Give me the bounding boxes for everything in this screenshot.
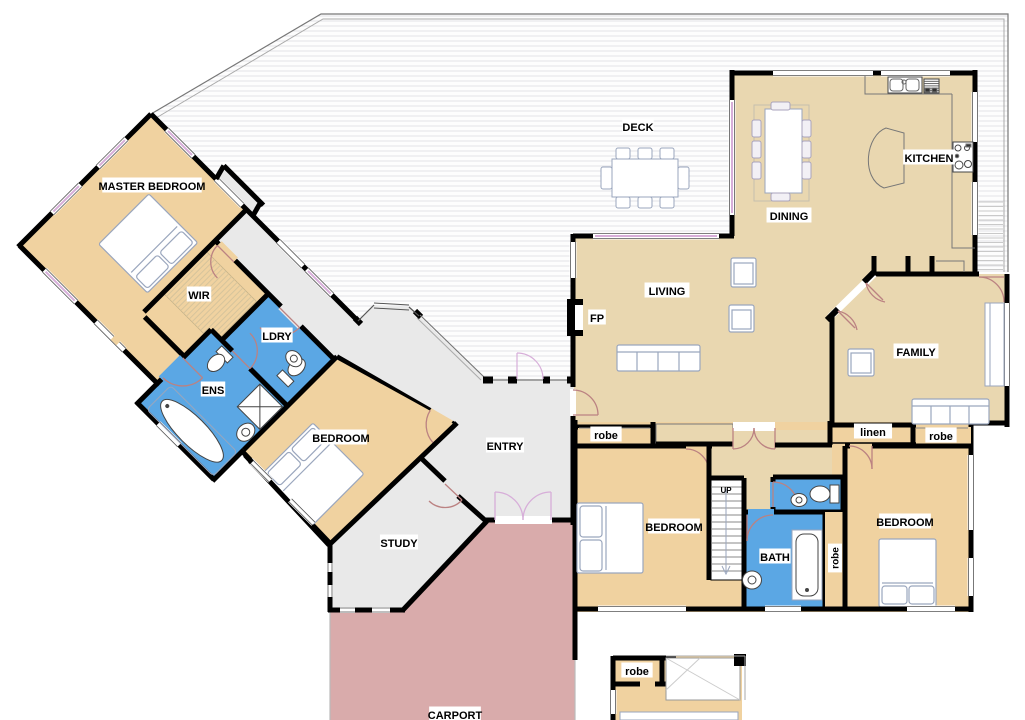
- svg-text:robe: robe: [625, 666, 649, 678]
- svg-text:BEDROOM: BEDROOM: [645, 522, 702, 534]
- svg-text:KITCHEN: KITCHEN: [905, 153, 954, 165]
- svg-text:BATH: BATH: [760, 552, 790, 564]
- svg-text:ENS: ENS: [202, 385, 225, 397]
- svg-text:STUDY: STUDY: [380, 538, 418, 550]
- svg-text:robe: robe: [594, 430, 618, 442]
- svg-text:CARPORT: CARPORT: [428, 710, 483, 720]
- svg-text:MASTER BEDROOM: MASTER BEDROOM: [99, 181, 206, 193]
- svg-text:DECK: DECK: [622, 122, 653, 134]
- svg-text:LIVING: LIVING: [649, 286, 686, 298]
- svg-text:robe: robe: [929, 431, 953, 443]
- svg-text:UP: UP: [720, 486, 732, 495]
- svg-text:BEDROOM: BEDROOM: [312, 433, 369, 445]
- svg-text:LDRY: LDRY: [262, 331, 292, 343]
- svg-text:ENTRY: ENTRY: [487, 441, 525, 453]
- svg-text:WIR: WIR: [188, 290, 209, 302]
- svg-text:DINING: DINING: [770, 211, 809, 223]
- svg-text:robe: robe: [831, 547, 842, 569]
- svg-text:FP: FP: [590, 313, 604, 325]
- svg-text:BEDROOM: BEDROOM: [876, 517, 933, 529]
- svg-text:linen: linen: [860, 427, 886, 439]
- svg-text:FAMILY: FAMILY: [896, 347, 936, 359]
